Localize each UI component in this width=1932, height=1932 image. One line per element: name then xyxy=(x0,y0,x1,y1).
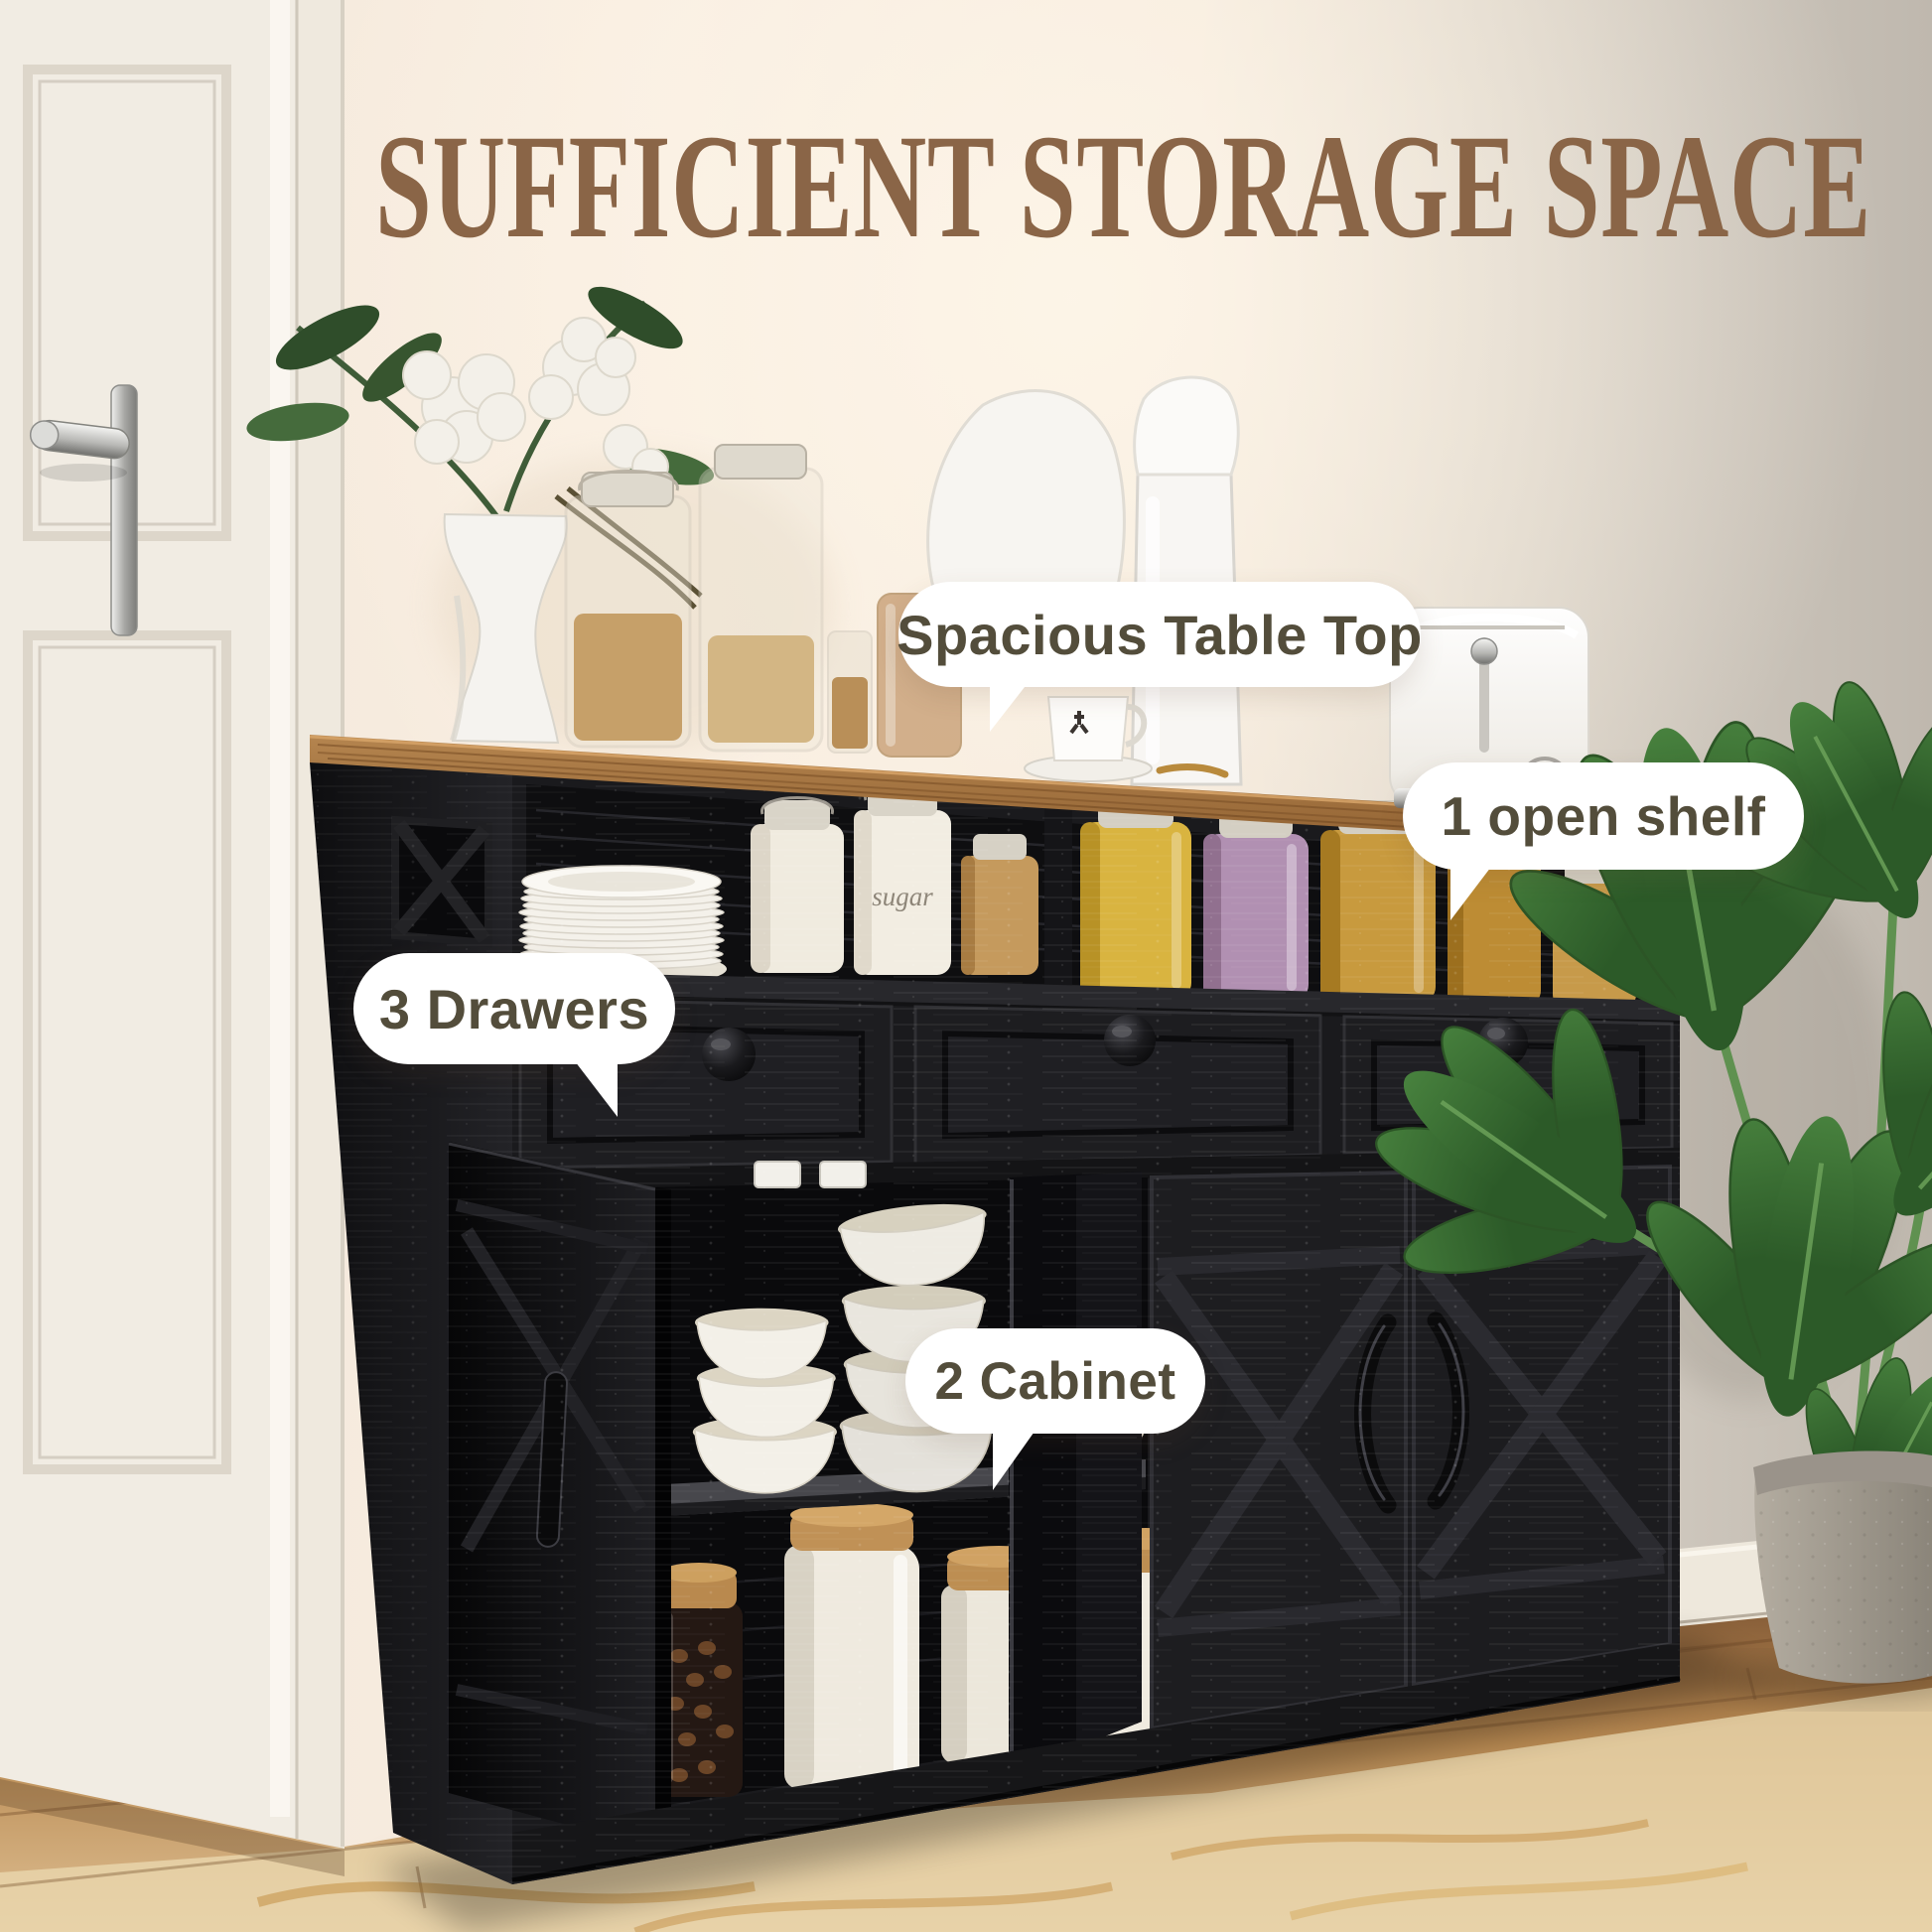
plant-pot xyxy=(1753,1451,1932,1684)
door-edge-highlight xyxy=(270,0,290,1817)
toaster-lever-knob xyxy=(1471,638,1497,664)
glass-jar-1 xyxy=(566,472,690,748)
headline: SUFFICIENT STORAGE SPACE xyxy=(375,111,1871,263)
glass-jar-small xyxy=(828,631,872,753)
callout-drawers: 3 Drawers xyxy=(353,953,675,1064)
callout-cabinet: 2 Cabinet xyxy=(905,1328,1205,1434)
callout-tail xyxy=(990,678,1032,732)
callout-open-shelf-label: 1 open shelf xyxy=(1442,784,1766,848)
callout-cabinet-label: 2 Cabinet xyxy=(934,1351,1175,1412)
callout-table-top: Spacious Table Top xyxy=(898,582,1421,687)
product-marketing-image: sugar xyxy=(0,0,1932,1932)
callout-table-top-label: Spacious Table Top xyxy=(897,603,1423,667)
callout-open-shelf: 1 open shelf xyxy=(1403,762,1804,870)
photo-scene: sugar xyxy=(0,0,1932,1932)
callout-tail xyxy=(572,1057,618,1117)
callout-tail xyxy=(993,1429,1036,1490)
callout-tail xyxy=(1450,863,1494,920)
callout-drawers-label: 3 Drawers xyxy=(379,977,649,1041)
white-interior-door xyxy=(0,0,345,1876)
glass-jar-2 xyxy=(700,445,822,751)
